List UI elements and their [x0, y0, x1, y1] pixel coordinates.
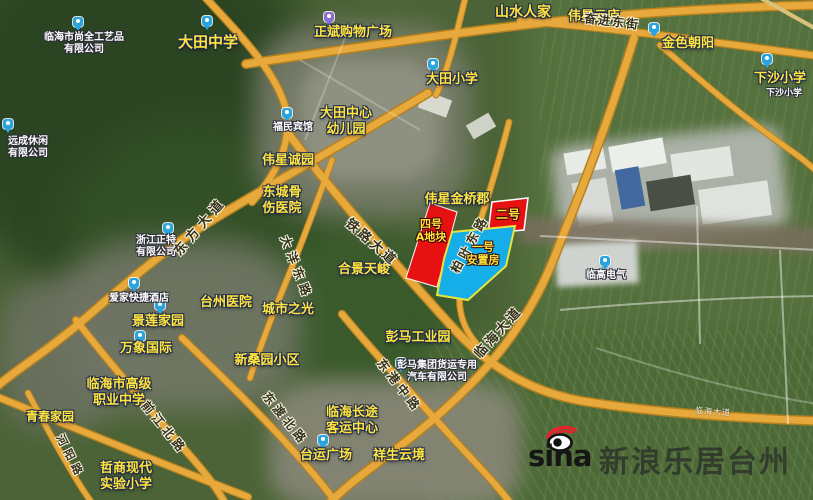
satellite-map-image: 大田中学山水人家伟星云庐正斌购物广场金色朝阳下沙小学下沙小学大田小学大田中心幼儿…	[0, 0, 813, 500]
shangquan-company-label: 临海市尚全工艺品有限公司	[44, 32, 124, 56]
plot-no2-label-label: 二号	[496, 208, 520, 223]
site-name-watermark: 新浪乐居台州	[599, 437, 791, 481]
jinse-zhaoyang-label: 金色朝阳	[662, 36, 714, 52]
poi-marker-icon	[129, 278, 139, 288]
plot-no4-label-label: 四号A地块	[416, 218, 447, 245]
poi-marker-icon	[202, 16, 212, 26]
chengshi-zhiguang-label: 城市之光	[262, 302, 314, 318]
zhengbin-mall-label: 正斌购物广场	[314, 25, 392, 41]
sina-wordmark: sina	[528, 439, 591, 473]
pengma-industrial-park-label: 彭马工业园	[385, 330, 450, 346]
datian-primary-label: 大田小学	[426, 72, 478, 88]
poi-marker-icon	[762, 54, 772, 64]
taizhou-hospital-label: 台州医院	[200, 295, 252, 311]
qingchun-jiayuan-label: 青春家园	[26, 410, 74, 425]
poi-marker-icon	[282, 108, 292, 118]
dongcheng-hospital-label: 东城骨伤医院	[262, 185, 301, 217]
poi-marker-icon	[163, 223, 173, 233]
taiyun-plaza-label: 台运广场	[300, 448, 352, 464]
poi-marker-icon	[3, 119, 13, 129]
datian-kindergarten-label: 大田中心幼儿园	[320, 106, 372, 138]
plot-no1-label-label: 一号安置房	[467, 241, 500, 268]
linhai-bus-center-label: 临海长途客运中心	[326, 405, 378, 437]
shanshui-renjia-label: 山水人家	[495, 4, 551, 21]
pengma-group-label: 彭马集团货运专用汽车有限公司	[397, 360, 477, 384]
zheshang-primary-label: 哲商现代实验小学	[100, 461, 152, 493]
watermark: sina 新浪乐居台州	[525, 420, 813, 480]
wanxiang-guoji-label: 万象国际	[120, 341, 172, 357]
aijia-hotel-label: 爱家快捷酒店	[109, 293, 169, 305]
poi-marker-icon	[135, 331, 145, 341]
poi-marker-icon	[649, 23, 659, 33]
xiasha-primary-small-label: 下沙小学	[766, 89, 802, 100]
xinsangyuan-xiaoqu-label: 新桑园小区	[234, 353, 299, 369]
yuancheng-company-label: 远成休闲有限公司	[8, 136, 48, 160]
xiasha-primary-label: 下沙小学	[754, 71, 806, 87]
weixing-jinqiaojun-label: 伟星金桥郡	[424, 192, 489, 208]
datian-middle-school-label: 大田中学	[178, 33, 238, 51]
fumin-hotel-label: 福民宾馆	[273, 122, 313, 134]
zhejiang-zhengte-label: 浙江正特有限公司	[136, 235, 176, 259]
poi-marker-icon	[73, 17, 83, 27]
hejing-tianjun-label: 合景天峻	[338, 262, 390, 278]
poi-marker-icon	[600, 256, 610, 266]
jinglian-jiayuan-label: 景莲家园	[132, 314, 184, 330]
xiangsheng-yunjing-label: 祥生云境	[373, 448, 425, 464]
poi-marker-icon	[324, 12, 334, 22]
poi-marker-icon	[428, 59, 438, 69]
lingao-electric-label: 临高电气	[586, 270, 626, 282]
weixing-chengyuan-label: 伟星诚园	[262, 153, 314, 169]
